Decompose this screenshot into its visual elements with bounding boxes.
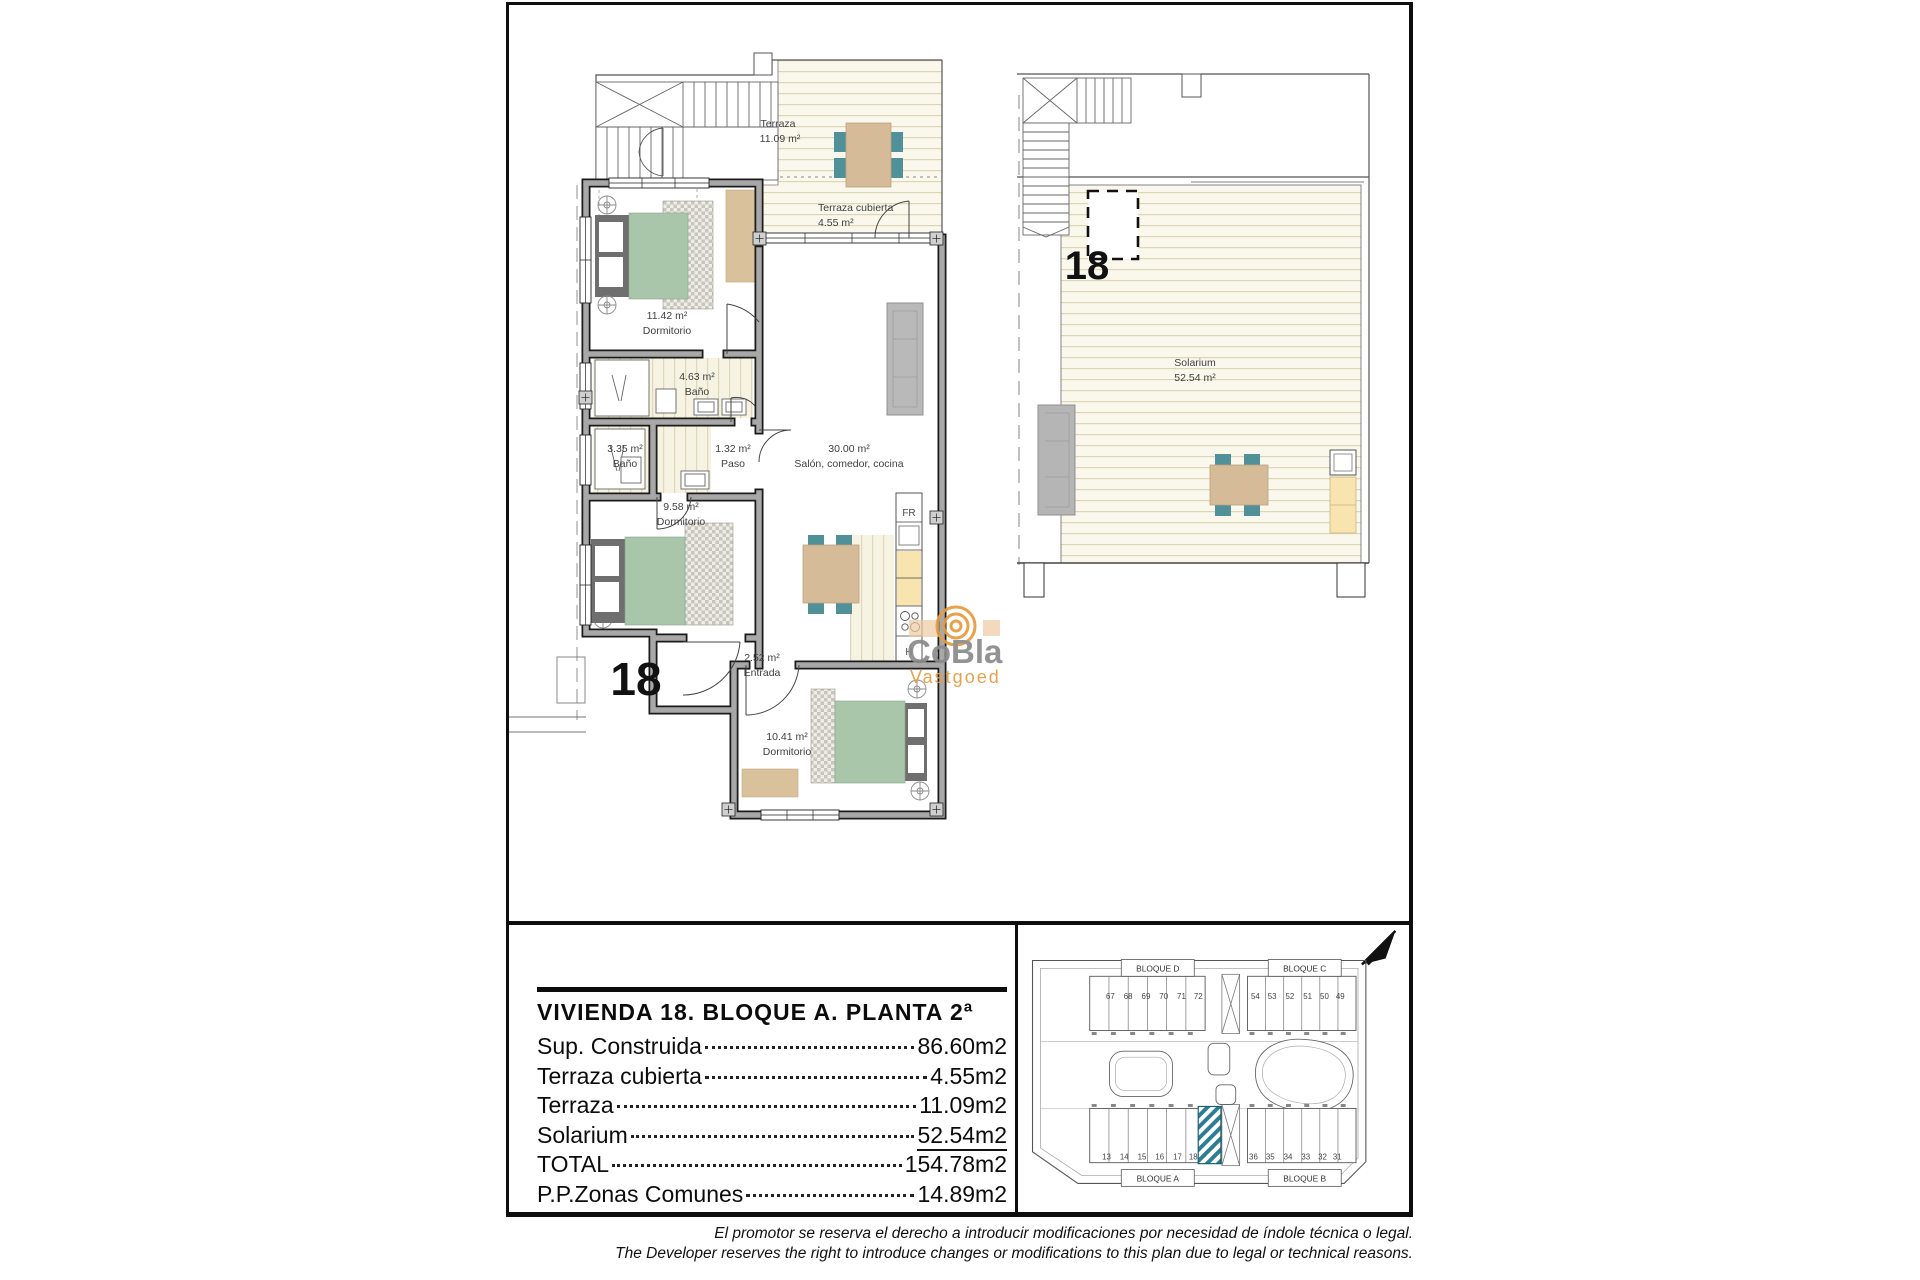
living-area: 30.00 m²	[828, 443, 870, 455]
legend-row: P.P.Zonas Comunes14.89m2	[537, 1181, 1007, 1211]
unit-num: 52	[1286, 992, 1295, 1001]
block-c-label: BLOQUE C	[1283, 963, 1326, 973]
dot-leader	[617, 1105, 916, 1108]
unit-num: 51	[1303, 992, 1312, 1001]
unit-number-solarium: 18	[1065, 244, 1110, 288]
unit-num: 16	[1155, 1153, 1164, 1162]
dot-leader	[631, 1135, 915, 1138]
disclaimer-line-es: El promotor se reserva el derecho a intr…	[615, 1224, 1413, 1244]
block-b-label: BLOQUE B	[1283, 1173, 1326, 1183]
vent-shaft	[754, 53, 772, 75]
bedroom1-furniture	[595, 190, 755, 309]
unit-num: 70	[1159, 992, 1168, 1001]
covered-terrace-area: 4.55 m²	[818, 217, 854, 229]
bedroom3-area: 10.41 m²	[766, 731, 808, 743]
unit-num: 68	[1124, 992, 1133, 1001]
legend-value: 52.54m2	[917, 1122, 1007, 1151]
unit-num: 53	[1268, 992, 1277, 1001]
solarium-plan: 18 Solarium 52.54 m²	[1017, 74, 1369, 597]
dot-leader	[705, 1076, 927, 1079]
solarium-area: 52.54 m²	[1174, 372, 1216, 384]
unit-num: 72	[1194, 992, 1203, 1001]
legend-label: Sup. Construida	[537, 1033, 702, 1060]
watermark-sub: Vastgoed	[910, 667, 1001, 687]
fridge-label: FR	[902, 508, 915, 519]
legend-value: 86.60m2	[917, 1033, 1007, 1060]
bottom-panels: VIVIENDA 18. BLOQUE A. PLANTA 2ª Sup. Co…	[509, 921, 1409, 1212]
entry-name: Entrada	[744, 667, 781, 679]
north-arrow-icon	[1362, 931, 1396, 965]
site-pools	[1109, 1039, 1353, 1111]
dot-leader	[746, 1194, 914, 1197]
legend-label: P.P.Zonas Comunes	[537, 1181, 743, 1208]
legend-value: 4.55m2	[930, 1063, 1007, 1090]
unit-num: 32	[1318, 1153, 1327, 1162]
block-d-label: BLOQUE D	[1136, 963, 1179, 973]
site-block-d: BLOQUE D 67 68 69 70 71 72	[1090, 960, 1205, 1034]
exterior-lines	[509, 185, 586, 732]
surface-legend: VIVIENDA 18. BLOQUE A. PLANTA 2ª Sup. Co…	[509, 925, 1018, 1212]
legend-label: Terraza cubierta	[537, 1063, 702, 1090]
legend-title: VIVIENDA 18. BLOQUE A. PLANTA 2ª	[537, 999, 1011, 1026]
terrace-name: Terraza	[760, 118, 795, 130]
unit-num: 54	[1251, 992, 1260, 1001]
unit-num: 49	[1336, 992, 1345, 1001]
legend-row: Sup. Construida86.60m2	[537, 1033, 1007, 1063]
unit-num: 36	[1249, 1153, 1258, 1162]
unit-num: 33	[1301, 1153, 1310, 1162]
unit-num: 69	[1142, 992, 1151, 1001]
disclaimer-line-en: The Developer reserves the right to intr…	[615, 1244, 1413, 1264]
unit-num: 67	[1106, 992, 1115, 1001]
legend-row: Terraza cubierta4.55m2	[537, 1063, 1007, 1093]
legend-value: 11.09m2	[919, 1092, 1007, 1119]
covered-terrace-name: Terraza cubierta	[818, 202, 893, 214]
hall-name: Paso	[721, 458, 745, 470]
legend-label: Terraza	[537, 1092, 614, 1119]
bath1-name: Baño	[685, 386, 710, 398]
watermark-name: CoBla	[907, 633, 1003, 670]
unit-num: 15	[1138, 1153, 1147, 1162]
dot-leader	[612, 1164, 902, 1167]
bedroom3-furniture	[742, 689, 927, 797]
legend-label: Solarium	[537, 1122, 628, 1149]
unit-num: 13	[1102, 1153, 1111, 1162]
floorplans-canvas: T Terraza 11.09 m² Terraza cubierta 4.55…	[509, 5, 1409, 921]
bedroom1-name: Dormitorio	[643, 325, 692, 337]
hall-area: 1.32 m²	[715, 443, 751, 455]
bedroom2-name: Dormitorio	[657, 516, 706, 528]
unit-num: 50	[1320, 992, 1329, 1001]
site-block-c: BLOQUE C 54 53 52 51 50 49	[1248, 960, 1356, 1034]
unit-num: 71	[1177, 992, 1186, 1001]
bath1-area: 4.63 m²	[679, 371, 715, 383]
site-block-b: BLOQUE B 36 35 34 33 32 31	[1248, 1105, 1356, 1186]
block-a-label: BLOQUE A	[1137, 1173, 1180, 1183]
legend-value: 154.78m2	[905, 1151, 1007, 1178]
terrace-area: 11.09 m²	[760, 133, 801, 145]
bedroom2-furniture	[591, 523, 733, 625]
unit-num: 34	[1284, 1153, 1293, 1162]
unit-num: 14	[1120, 1153, 1129, 1162]
plan-sheet-page: T Terraza 11.09 m² Terraza cubierta 4.55…	[0, 0, 1920, 1280]
bedroom2-area: 9.58 m²	[663, 501, 699, 513]
legend-row: TOTAL154.78m2	[537, 1151, 1007, 1181]
unit-num: 18	[1189, 1153, 1198, 1162]
entry-area: 2.52 m²	[744, 652, 780, 664]
bath2-area: 3.35 m²	[607, 443, 643, 455]
unit-num: 31	[1333, 1153, 1342, 1162]
living-name: Salón, comedor, cocina	[794, 458, 903, 470]
legend-row: Terraza11.09m2	[537, 1092, 1007, 1122]
legend-rows: Sup. Construida86.60m2 Terraza cubierta4…	[537, 1033, 1007, 1210]
unit-num: 35	[1266, 1153, 1275, 1162]
bath2-name: Baño	[613, 458, 638, 470]
legend-label: TOTAL	[537, 1151, 609, 1178]
solarium-name: Solarium	[1174, 357, 1216, 369]
bedroom1-area: 11.42 m²	[647, 310, 688, 322]
legend-row: Solarium52.54m2	[537, 1122, 1007, 1152]
legend-value: 14.89m2	[917, 1181, 1007, 1208]
unit-number-main: 18	[610, 653, 661, 705]
highlighted-unit-18	[1198, 1106, 1221, 1163]
bedroom3-name: Dormitorio	[763, 746, 812, 758]
legend-rule	[537, 987, 1007, 992]
site-plan: BLOQUE D 67 68 69 70 71 72	[1018, 925, 1409, 1212]
disclaimer: El promotor se reserva el derecho a intr…	[615, 1224, 1413, 1264]
stairs-icon	[596, 82, 778, 180]
unit-num: 17	[1173, 1153, 1182, 1162]
dot-leader	[705, 1046, 915, 1049]
drawing-frame: T Terraza 11.09 m² Terraza cubierta 4.55…	[506, 2, 1413, 1217]
site-block-a: BLOQUE A 13 14 15 16 17 18	[1090, 1105, 1221, 1186]
